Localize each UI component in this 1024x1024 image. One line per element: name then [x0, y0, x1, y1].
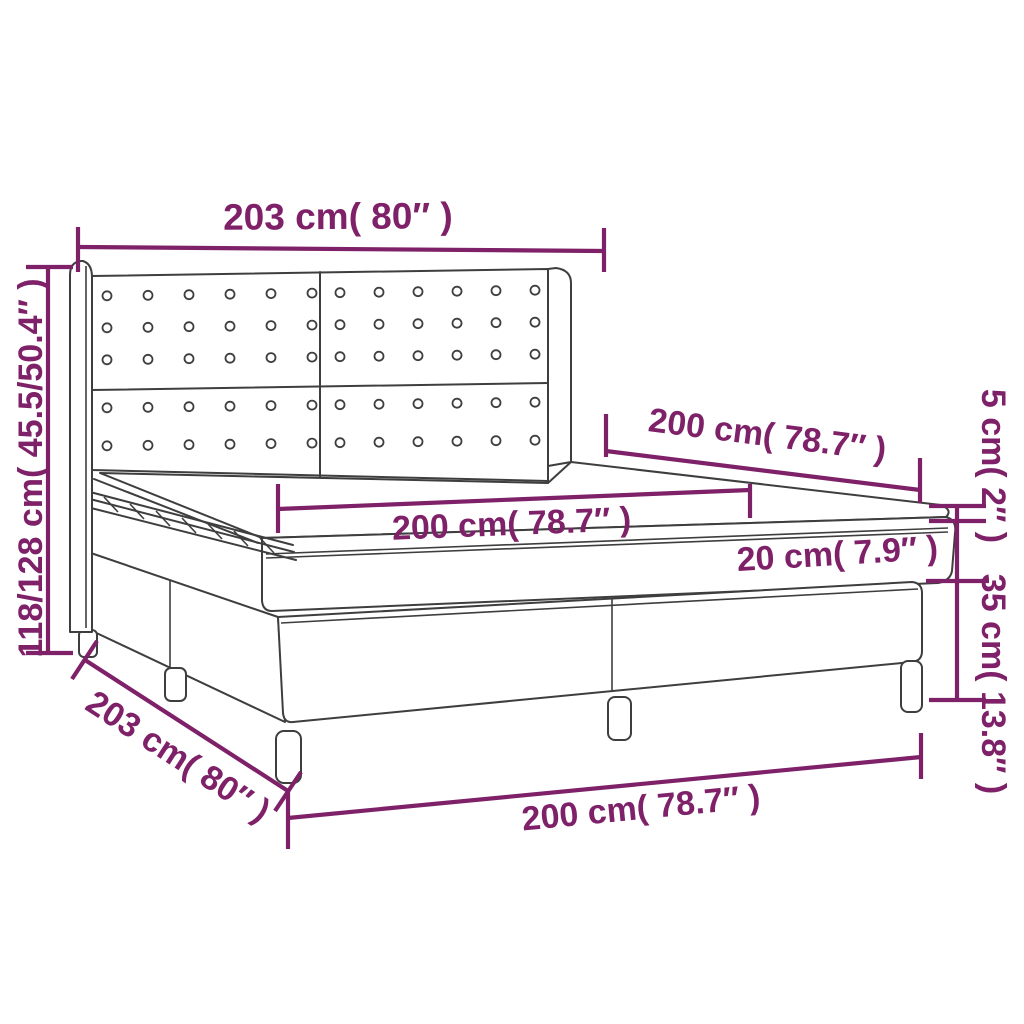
tufting-button-icon — [103, 441, 112, 450]
tufting-button-icon — [267, 289, 276, 298]
diagram-canvas: 203 cm( 80″ ) 118/128 cm( 45.5/50.4″ ) 2… — [0, 0, 1024, 1024]
tufting-button-icon — [453, 287, 462, 296]
tufting-button-icon — [185, 290, 194, 299]
tufting-button-icon — [414, 287, 423, 296]
tufting-button-icon — [185, 402, 194, 411]
tufting-button-icon — [414, 399, 423, 408]
tufting-button-icon — [336, 320, 345, 329]
label-base-height: 35 cm( 13.8″ ) — [974, 574, 1012, 794]
bed-dimension-diagram: 203 cm( 80″ ) 118/128 cm( 45.5/50.4″ ) 2… — [0, 0, 1024, 1024]
leg-left-mid — [165, 668, 186, 701]
label-topper-thickness: 5 cm( 2″ ) — [974, 389, 1012, 543]
tufting-button-icon — [414, 351, 423, 360]
headboard-wing-left — [70, 261, 92, 632]
tufting-button-icon — [414, 437, 423, 446]
tufting-button-icon — [492, 398, 501, 407]
tufting-button-icon — [375, 400, 384, 409]
tufting-button-icon — [144, 403, 153, 412]
tufting-button-icon — [492, 436, 501, 445]
tufting-button-icon — [336, 438, 345, 447]
tufting-button-icon — [144, 441, 153, 450]
tufting-button-icon — [267, 401, 276, 410]
tufting-button-icon — [267, 439, 276, 448]
tufting-button-icon — [492, 318, 501, 327]
tufting-button-icon — [226, 354, 235, 363]
dimension-bed-height: 118/128 cm( 45.5/50.4″ ) — [12, 267, 73, 658]
tufting-button-icon — [453, 437, 462, 446]
dimension-headboard-width: 203 cm( 80″ ) — [78, 195, 604, 272]
tufting-button-icon — [531, 350, 540, 359]
leg-front-mid — [608, 697, 631, 740]
tufting-button-icon — [144, 291, 153, 300]
tufting-button-icon — [414, 319, 423, 328]
tufting-button-icon — [103, 291, 112, 300]
tufting-button-icon — [375, 288, 384, 297]
tufting-button-icon — [336, 400, 345, 409]
tufting-button-icon — [144, 355, 153, 364]
tufting-button-icon — [308, 439, 317, 448]
headboard-wing-right — [548, 268, 571, 466]
tufting-button-icon — [375, 438, 384, 447]
tufting-button-icon — [185, 322, 194, 331]
tufting-button-icon — [308, 401, 317, 410]
tufting-button-icon — [531, 398, 540, 407]
label-frame-depth: 203 cm( 80″ ) — [79, 683, 277, 830]
tufting-button-icon — [185, 440, 194, 449]
tufting-button-icon — [531, 286, 540, 295]
tufting-button-icon — [375, 352, 384, 361]
tufting-button-icon — [308, 321, 317, 330]
tufting-button-icon — [453, 399, 462, 408]
tufting-button-icon — [226, 440, 235, 449]
dimension-line — [78, 247, 604, 251]
label-headboard-width: 203 cm( 80″ ) — [223, 195, 453, 238]
tufting-button-icon — [492, 350, 501, 359]
tufting-button-icon — [492, 286, 501, 295]
dimension-frame-front-width: 200 cm( 78.7″ ) — [288, 733, 921, 849]
tufting-button-icon — [226, 402, 235, 411]
tufting-button-icon — [531, 318, 540, 327]
tufting-button-icon — [453, 319, 462, 328]
tufting-button-icon — [375, 320, 384, 329]
tufting-button-icon — [103, 323, 112, 332]
tufting-button-icon — [103, 403, 112, 412]
dimension-right-stack: 5 cm( 2″ ) 35 cm( 13.8″ ) — [926, 389, 1012, 794]
tufting-button-icon — [531, 436, 540, 445]
tufting-button-icon — [336, 288, 345, 297]
label-frame-front-width: 200 cm( 78.7″ ) — [520, 778, 762, 839]
label-bed-height: 118/128 cm( 45.5/50.4″ ) — [12, 278, 50, 657]
tufting-button-icon — [144, 323, 153, 332]
tufting-button-icon — [453, 351, 462, 360]
leg-front-right — [901, 661, 922, 712]
tufting-button-icon — [267, 353, 276, 362]
tufting-button-icon — [267, 321, 276, 330]
tufting-button-icon — [308, 353, 317, 362]
tufting-button-icon — [226, 322, 235, 331]
tufting-button-icon — [336, 352, 345, 361]
tufting-button-icon — [185, 354, 194, 363]
tufting-button-icon — [226, 290, 235, 299]
tufting-button-icon — [103, 355, 112, 364]
tufting-button-icon — [308, 289, 317, 298]
